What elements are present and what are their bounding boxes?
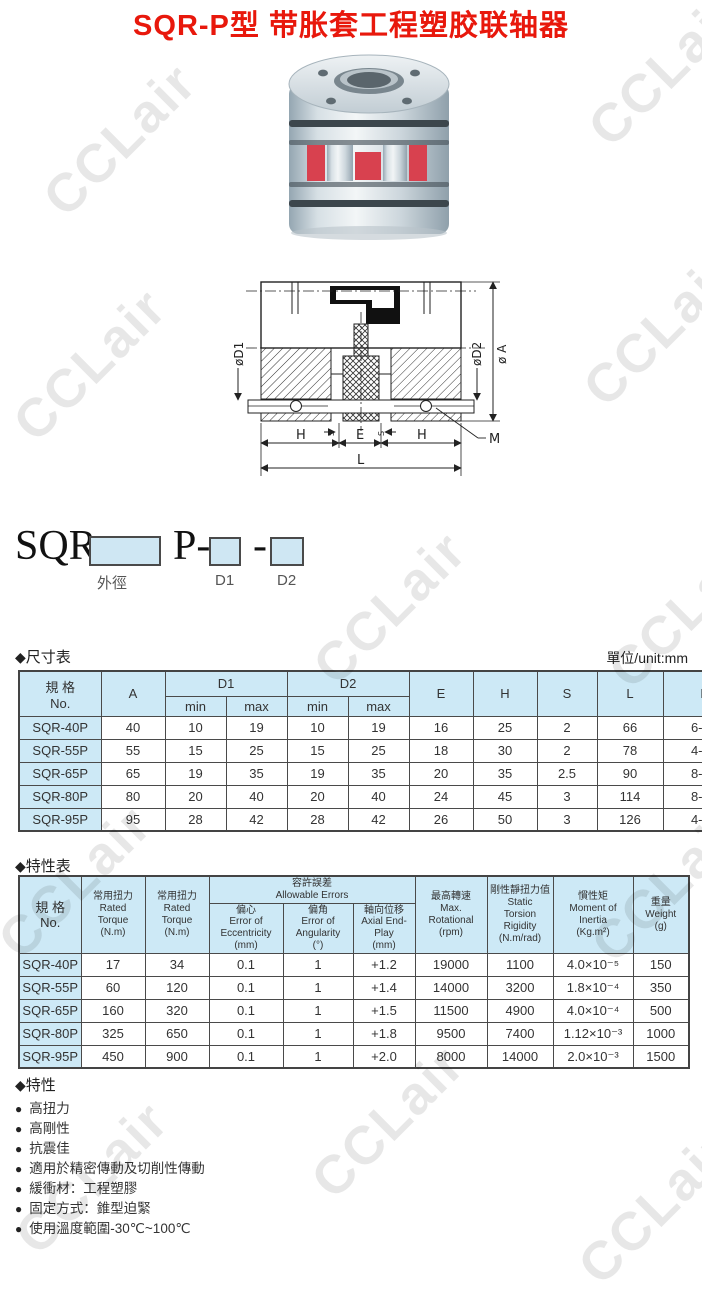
cell: 11500 xyxy=(415,999,487,1022)
cell: 15 xyxy=(287,739,348,762)
cell: 320 xyxy=(145,999,209,1022)
cell: 78 xyxy=(597,739,663,762)
cell: 126 xyxy=(597,808,663,831)
cell: 325 xyxy=(81,1022,145,1045)
cell: 4900 xyxy=(487,999,553,1022)
col-header-e: E xyxy=(409,671,473,716)
page-title: SQR-P型 带胀套工程塑胶联轴器 xyxy=(0,2,702,44)
cell: 30 xyxy=(473,739,537,762)
ordering-code: SQR- 外徑 P- D1 - D2 xyxy=(15,524,687,596)
cell: 160 xyxy=(81,999,145,1022)
col-header-d1-max: max xyxy=(226,696,287,716)
cell: 6-M4 xyxy=(663,716,702,739)
cell: 95 xyxy=(101,808,165,831)
cell-spec: SQR-95P xyxy=(19,808,101,831)
cell: 1 xyxy=(283,1022,353,1045)
cell: 2.0×10⁻³ xyxy=(553,1045,633,1068)
cell: 80 xyxy=(101,785,165,808)
cell: 350 xyxy=(633,976,689,999)
cell: 20 xyxy=(287,785,348,808)
cell: 55 xyxy=(101,739,165,762)
table-row: SQR-40P 17340.11+1.21900011004.0×10⁻⁵150 xyxy=(19,953,689,976)
ordering-d1-box xyxy=(209,537,241,566)
cell: 45 xyxy=(473,785,537,808)
cell: 4.0×10⁻⁵ xyxy=(553,953,633,976)
cell: 4-M8 xyxy=(663,808,702,831)
cell: 25 xyxy=(473,716,537,739)
cell-spec: SQR-40P xyxy=(19,953,81,976)
cell: 0.1 xyxy=(209,999,283,1022)
cell-spec: SQR-65P xyxy=(19,762,101,785)
list-item: ●固定方式：錐型迫緊 xyxy=(15,1199,515,1219)
dimension-section-title-text: 尺寸表 xyxy=(26,649,71,666)
col-header-h: H xyxy=(473,671,537,716)
ordering-d1-label: D1 xyxy=(215,572,234,589)
col-header-rated-torque-2: 常用扭力 Rated Torque (N.m) xyxy=(145,876,209,953)
watermark-text: CCLair xyxy=(31,51,209,229)
ordering-d2-box xyxy=(270,537,304,566)
cell: 20 xyxy=(409,762,473,785)
cell: 114 xyxy=(597,785,663,808)
table-row: SQR-40P 401019101916252666-M4 xyxy=(19,716,702,739)
bullet-icon: ● xyxy=(15,1100,22,1119)
cell: 34 xyxy=(145,953,209,976)
table-row: SQR-95P 9528422842265031264-M8 xyxy=(19,808,702,831)
watermark-text: CCLair xyxy=(1,276,179,454)
col-header-max-rotational: 最高轉速 Max. Rotational (rpm) xyxy=(415,876,487,953)
list-item: ●使用溫度範圍-30℃~100℃ xyxy=(15,1219,515,1239)
cell: 650 xyxy=(145,1022,209,1045)
dim-label-a: ø A xyxy=(495,344,509,364)
feature-text: 適用於精密傳動及切削性傳動 xyxy=(29,1159,205,1178)
diamond-icon: ◆ xyxy=(15,1077,26,1093)
col-header-spec: 規 格 No. xyxy=(19,876,81,953)
cell: 28 xyxy=(287,808,348,831)
cell: 1.12×10⁻³ xyxy=(553,1022,633,1045)
col-header-d2: D2 xyxy=(287,671,409,696)
features-section-title-text: 特性 xyxy=(26,1077,56,1094)
bullet-icon: ● xyxy=(15,1220,22,1239)
cell: 150 xyxy=(633,953,689,976)
list-item: ●適用於精密傳動及切削性傳動 xyxy=(15,1159,515,1179)
char-section-title-text: 特性表 xyxy=(26,858,71,875)
cell: 2.5 xyxy=(537,762,597,785)
cell: 8000 xyxy=(415,1045,487,1068)
dim-label-s-left: S xyxy=(327,431,336,436)
cell-spec: SQR-55P xyxy=(19,739,101,762)
col-header-spec: 規 格 No. xyxy=(19,671,101,716)
unit-label: 單位/unit:mm xyxy=(606,648,688,668)
ordering-outer-dia-box xyxy=(89,536,161,566)
dim-label-d1: øD1 xyxy=(232,342,246,366)
cell: 19 xyxy=(165,762,226,785)
table-row: SQR-95P 4509000.11+2.08000140002.0×10⁻³1… xyxy=(19,1045,689,1068)
cell: 10 xyxy=(165,716,226,739)
cell: 1000 xyxy=(633,1022,689,1045)
cell: 18 xyxy=(409,739,473,762)
table-row: SQR-80P 8020402040244531148-M6 xyxy=(19,785,702,808)
ordering-dash: - xyxy=(253,522,267,570)
dimension-table: 規 格 No. A D1 D2 E H S L M min max min ma… xyxy=(18,670,702,832)
cell: 1500 xyxy=(633,1045,689,1068)
dim-label-m: M xyxy=(489,432,500,447)
cell: 90 xyxy=(597,762,663,785)
cell: 1 xyxy=(283,976,353,999)
technical-drawing: H E H L ø A øD2 øD1 S S M xyxy=(188,256,522,504)
cell: 24 xyxy=(409,785,473,808)
product-photo xyxy=(283,44,455,242)
cell: 0.1 xyxy=(209,1022,283,1045)
cell: 50 xyxy=(473,808,537,831)
dim-label-h-left: H xyxy=(296,428,306,443)
cell: 7400 xyxy=(487,1022,553,1045)
table-row: SQR-55P 601200.11+1.41400032001.8×10⁻⁴35… xyxy=(19,976,689,999)
cell: 28 xyxy=(165,808,226,831)
cell: 1 xyxy=(283,1045,353,1068)
cell: 8-M5 xyxy=(663,762,702,785)
features-list: ●高扭力 ●高剛性 ●抗震佳 ●適用於精密傳動及切削性傳動 ●緩衝材：工程塑膠 … xyxy=(15,1099,515,1239)
cell: 40 xyxy=(226,785,287,808)
cell-spec: SQR-95P xyxy=(19,1045,81,1068)
cell: 35 xyxy=(226,762,287,785)
cell: 4.0×10⁻⁴ xyxy=(553,999,633,1022)
cell: 35 xyxy=(348,762,409,785)
table-row: SQR-80P 3256500.11+1.8950074001.12×10⁻³1… xyxy=(19,1022,689,1045)
dim-label-s-right: S xyxy=(377,431,386,436)
cell-spec: SQR-80P xyxy=(19,785,101,808)
bullet-icon: ● xyxy=(15,1160,22,1179)
cell: 2 xyxy=(537,739,597,762)
dim-label-h-right: H xyxy=(417,428,427,443)
cell: 14000 xyxy=(415,976,487,999)
cell: 60 xyxy=(81,976,145,999)
list-item: ●高剛性 xyxy=(15,1119,515,1139)
col-header-l: L xyxy=(597,671,663,716)
col-header-inertia: 慣性矩 Moment of Inertia (Kg.m²) xyxy=(553,876,633,953)
cell: 25 xyxy=(348,739,409,762)
col-header-allowable-errors: 容許誤差 Allowable Errors xyxy=(209,876,415,903)
ordering-outer-dia-label: 外徑 xyxy=(97,572,127,593)
cell: 3 xyxy=(537,785,597,808)
cell: 42 xyxy=(226,808,287,831)
cell: 14000 xyxy=(487,1045,553,1068)
cell: 1 xyxy=(283,953,353,976)
cell: 26 xyxy=(409,808,473,831)
dim-label-l: L xyxy=(357,453,365,468)
cell: 0.1 xyxy=(209,953,283,976)
col-header-rated-torque-1: 常用扭力 Rated Torque (N.m) xyxy=(81,876,145,953)
cell: 19 xyxy=(226,716,287,739)
feature-text: 高剛性 xyxy=(29,1119,70,1138)
cell: 1.8×10⁻⁴ xyxy=(553,976,633,999)
col-header-m: M xyxy=(663,671,702,716)
cell: 66 xyxy=(597,716,663,739)
bullet-icon: ● xyxy=(15,1200,22,1219)
cell: 450 xyxy=(81,1045,145,1068)
cell: 4-M5 xyxy=(663,739,702,762)
list-item: ●高扭力 xyxy=(15,1099,515,1119)
col-header-weight: 重量 Weight (g) xyxy=(633,876,689,953)
cell: 8-M6 xyxy=(663,785,702,808)
cell: 19000 xyxy=(415,953,487,976)
feature-text: 使用溫度範圍-30℃~100℃ xyxy=(29,1219,190,1238)
dim-label-e: E xyxy=(356,428,364,443)
cell: 19 xyxy=(287,762,348,785)
features-section-title: ◆特性 xyxy=(15,1074,56,1095)
cell: 3 xyxy=(537,808,597,831)
cell: 40 xyxy=(101,716,165,739)
col-header-d1-min: min xyxy=(165,696,226,716)
col-header-d2-min: min xyxy=(287,696,348,716)
feature-text: 固定方式：錐型迫緊 xyxy=(29,1199,151,1218)
cell: +1.8 xyxy=(353,1022,415,1045)
cell: 500 xyxy=(633,999,689,1022)
cell: +1.2 xyxy=(353,953,415,976)
dimension-section-title: ◆尺寸表 xyxy=(15,646,71,667)
cell: 1 xyxy=(283,999,353,1022)
col-header-angularity: 偏角 Error of Angularity (°) xyxy=(283,903,353,953)
watermark-text: CCLair xyxy=(566,1119,702,1297)
char-section-title: ◆特性表 xyxy=(15,855,71,876)
col-header-d2-max: max xyxy=(348,696,409,716)
cell-spec: SQR-65P xyxy=(19,999,81,1022)
cell: 42 xyxy=(348,808,409,831)
cell: +1.5 xyxy=(353,999,415,1022)
cell: 15 xyxy=(165,739,226,762)
list-item: ●緩衝材：工程塑膠 xyxy=(15,1179,515,1199)
cell: 1100 xyxy=(487,953,553,976)
cell-spec: SQR-80P xyxy=(19,1022,81,1045)
cell: 20 xyxy=(165,785,226,808)
list-item: ●抗震佳 xyxy=(15,1139,515,1159)
cell: 19 xyxy=(348,716,409,739)
cell: 0.1 xyxy=(209,976,283,999)
feature-text: 緩衝材：工程塑膠 xyxy=(29,1179,137,1198)
table-row: SQR-65P 651935193520352.5908-M5 xyxy=(19,762,702,785)
table-row: SQR-55P 551525152518302784-M5 xyxy=(19,739,702,762)
cell: 17 xyxy=(81,953,145,976)
cell: 3200 xyxy=(487,976,553,999)
cell: 9500 xyxy=(415,1022,487,1045)
cell-spec: SQR-55P xyxy=(19,976,81,999)
ordering-mid: P- xyxy=(173,522,210,570)
cell: 16 xyxy=(409,716,473,739)
cell: 40 xyxy=(348,785,409,808)
feature-text: 高扭力 xyxy=(29,1099,70,1118)
col-header-s: S xyxy=(537,671,597,716)
cell: 0.1 xyxy=(209,1045,283,1068)
col-header-rigidity: 剛性靜扭力值 Static Torsion Rigidity (N.m/rad) xyxy=(487,876,553,953)
bullet-icon: ● xyxy=(15,1140,22,1159)
col-header-d1: D1 xyxy=(165,671,287,696)
diamond-icon: ◆ xyxy=(15,649,26,665)
cell: +2.0 xyxy=(353,1045,415,1068)
col-header-eccentricity: 偏心 Error of Eccentricity (mm) xyxy=(209,903,283,953)
diamond-icon: ◆ xyxy=(15,858,26,874)
cell: 900 xyxy=(145,1045,209,1068)
ordering-d2-label: D2 xyxy=(277,572,296,589)
col-header-a: A xyxy=(101,671,165,716)
characteristics-table: 規 格 No. 常用扭力 Rated Torque (N.m) 常用扭力 Rat… xyxy=(18,875,690,1069)
cell: 2 xyxy=(537,716,597,739)
bullet-icon: ● xyxy=(15,1180,22,1199)
bullet-icon: ● xyxy=(15,1120,22,1139)
cell: +1.4 xyxy=(353,976,415,999)
cell: 65 xyxy=(101,762,165,785)
col-header-axial-play: 軸向位移 Axial End- Play (mm) xyxy=(353,903,415,953)
cell: 25 xyxy=(226,739,287,762)
cell-spec: SQR-40P xyxy=(19,716,101,739)
dim-label-d2: øD2 xyxy=(470,342,484,366)
cell: 120 xyxy=(145,976,209,999)
cell: 10 xyxy=(287,716,348,739)
feature-text: 抗震佳 xyxy=(29,1139,70,1158)
watermark-text: CCLair xyxy=(571,241,702,419)
table-row: SQR-65P 1603200.11+1.51150049004.0×10⁻⁴5… xyxy=(19,999,689,1022)
cell: 35 xyxy=(473,762,537,785)
